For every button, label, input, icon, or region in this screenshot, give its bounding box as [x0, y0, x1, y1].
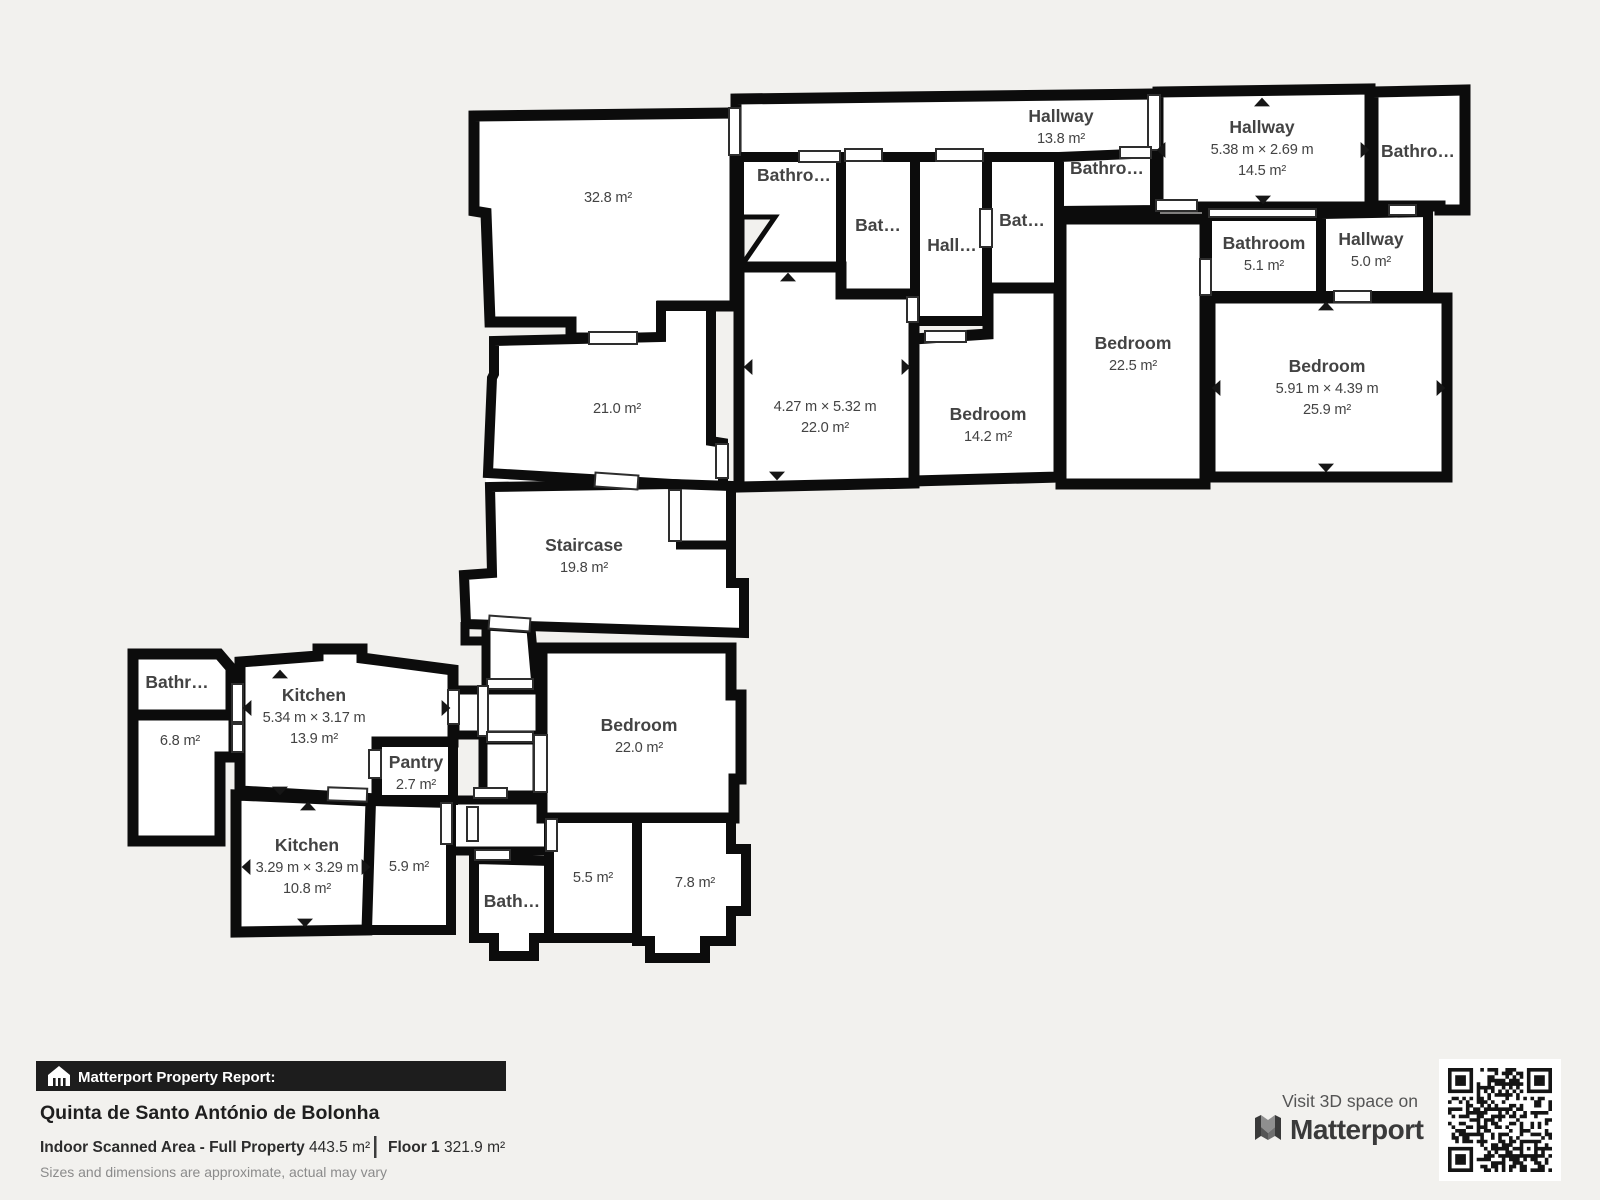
svg-text:5.9 m²: 5.9 m²: [389, 859, 429, 875]
svg-text:5.38 m × 2.69 m: 5.38 m × 2.69 m: [1211, 142, 1314, 158]
svg-text:Kitchen: Kitchen: [275, 835, 339, 855]
svg-text:5.0 m²: 5.0 m²: [1351, 254, 1391, 270]
svg-text:Indoor Scanned Area - Full Pro: Indoor Scanned Area - Full Property 443.…: [40, 1139, 370, 1156]
svg-text:Bath…: Bath…: [484, 891, 540, 911]
svg-text:Bathr…: Bathr…: [145, 672, 208, 692]
svg-text:7.8 m²: 7.8 m²: [675, 875, 715, 891]
svg-text:Bathro…: Bathro…: [1070, 158, 1144, 178]
svg-text:10.8 m²: 10.8 m²: [283, 881, 331, 897]
svg-text:5.1 m²: 5.1 m²: [1244, 258, 1284, 274]
svg-text:14.5 m²: 14.5 m²: [1238, 163, 1286, 179]
svg-text:5.91 m × 4.39 m: 5.91 m × 4.39 m: [1276, 381, 1379, 397]
svg-text:Matterport Property Report:: Matterport Property Report:: [78, 1069, 276, 1086]
svg-text:19.8 m²: 19.8 m²: [560, 560, 608, 576]
svg-text:13.9 m²: 13.9 m²: [290, 731, 338, 747]
svg-text:Kitchen: Kitchen: [282, 685, 346, 705]
svg-text:Bathroom: Bathroom: [1223, 233, 1306, 253]
svg-text:Bedroom: Bedroom: [1289, 356, 1366, 376]
svg-text:Floor 1 321.9 m²: Floor 1 321.9 m²: [388, 1139, 505, 1156]
svg-text:Bat…: Bat…: [855, 215, 901, 235]
svg-text:Quinta de Santo António de Bol: Quinta de Santo António de Bolonha: [40, 1102, 380, 1124]
svg-text:22.5 m²: 22.5 m²: [1109, 358, 1157, 374]
svg-text:32.8 m²: 32.8 m²: [584, 190, 632, 206]
svg-text:3.29 m × 3.29 m: 3.29 m × 3.29 m: [256, 860, 359, 876]
svg-text:21.0 m²: 21.0 m²: [593, 401, 641, 417]
svg-text:5.5 m²: 5.5 m²: [573, 870, 613, 886]
svg-text:Hallway: Hallway: [1028, 106, 1093, 126]
svg-text:4.27 m × 5.32 m: 4.27 m × 5.32 m: [774, 399, 877, 415]
svg-text:14.2 m²: 14.2 m²: [964, 429, 1012, 445]
svg-text:Visit 3D space on: Visit 3D space on: [1282, 1091, 1418, 1111]
svg-text:Pantry: Pantry: [389, 752, 444, 772]
svg-text:Hall…: Hall…: [927, 235, 977, 255]
svg-text:Bedroom: Bedroom: [950, 404, 1027, 424]
svg-text:Sizes and dimensions are appro: Sizes and dimensions are approximate, ac…: [40, 1164, 387, 1180]
svg-text:2.7 m²: 2.7 m²: [396, 777, 436, 793]
svg-text:Hallway: Hallway: [1229, 117, 1294, 137]
svg-text:Staircase: Staircase: [545, 535, 623, 555]
svg-text:22.0 m²: 22.0 m²: [801, 420, 849, 436]
svg-text:Bathro…: Bathro…: [1381, 141, 1455, 161]
svg-text:Bathro…: Bathro…: [757, 165, 831, 185]
svg-text:Bat…: Bat…: [999, 210, 1045, 230]
svg-text:Bedroom: Bedroom: [1095, 333, 1172, 353]
svg-text:25.9 m²: 25.9 m²: [1303, 402, 1351, 418]
svg-text:Matterport: Matterport: [1290, 1114, 1424, 1145]
svg-text:22.0 m²: 22.0 m²: [615, 740, 663, 756]
svg-text:13.8 m²: 13.8 m²: [1037, 131, 1085, 147]
svg-text:6.8 m²: 6.8 m²: [160, 733, 200, 749]
svg-text:5.34 m × 3.17 m: 5.34 m × 3.17 m: [263, 710, 366, 726]
svg-text:Hallway: Hallway: [1338, 229, 1403, 249]
svg-text:Bedroom: Bedroom: [601, 715, 678, 735]
